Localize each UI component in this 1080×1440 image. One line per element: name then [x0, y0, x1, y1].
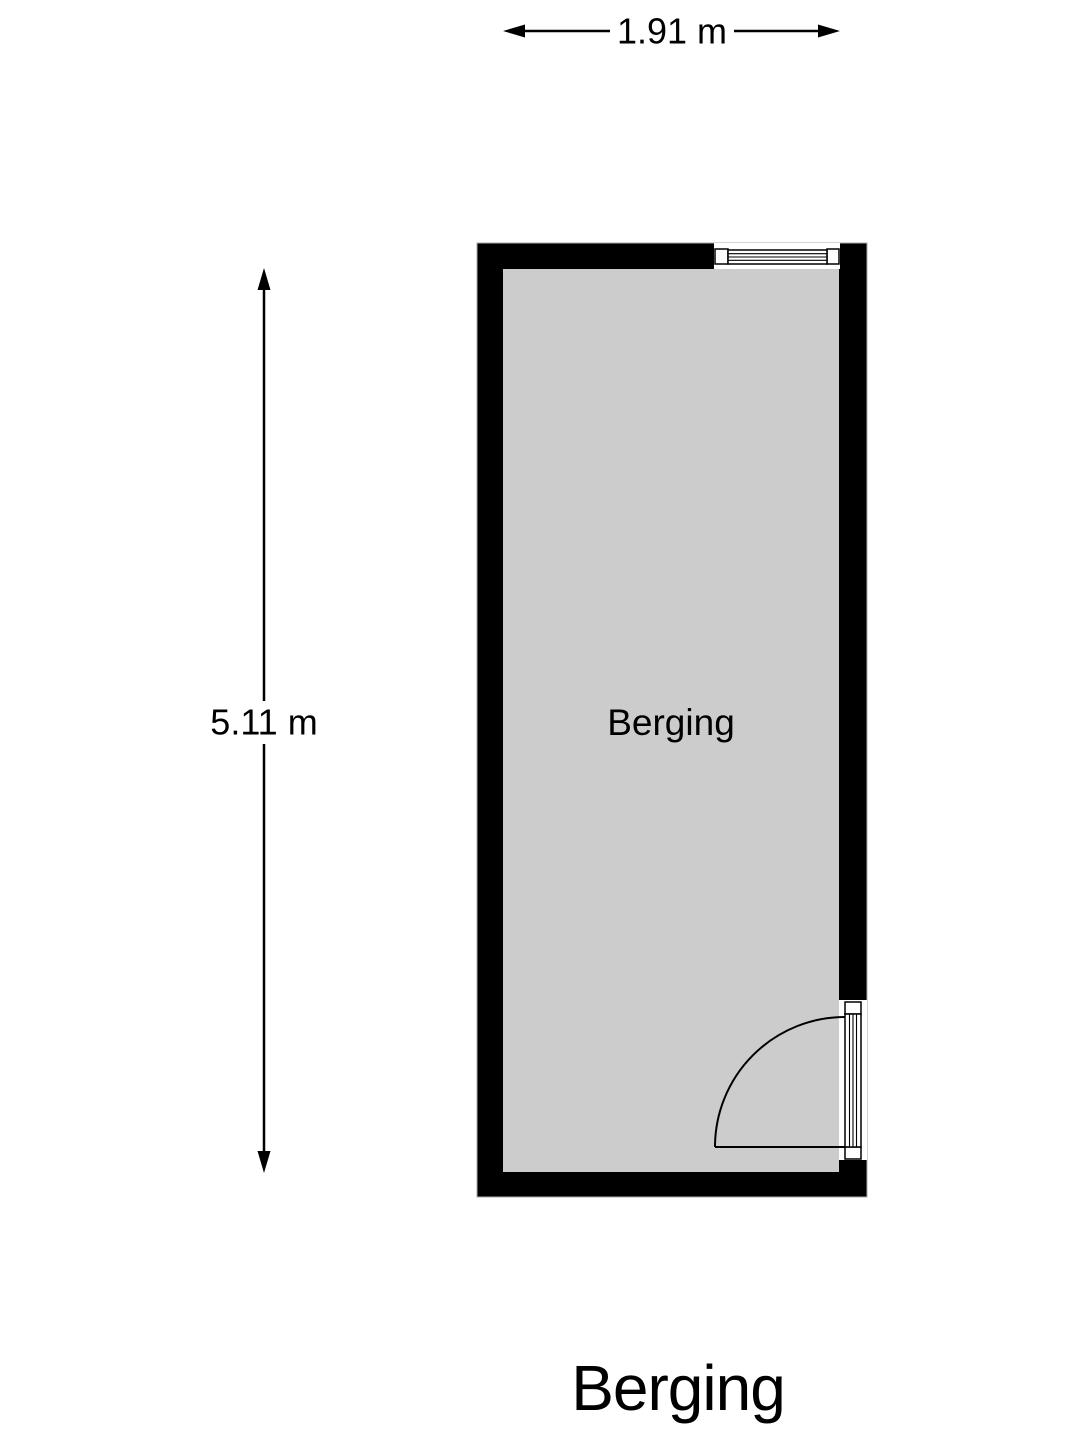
door-jamb-top: [845, 1002, 861, 1014]
arrowhead-right-icon: [818, 25, 840, 38]
arrowhead-up-icon: [258, 268, 271, 290]
plan-title: Berging: [571, 1352, 785, 1424]
height-dimension: 5.11 m: [210, 268, 317, 1173]
door-jamb-bottom: [845, 1147, 861, 1159]
width-dimension-label: 1.91 m: [617, 11, 727, 52]
window: [714, 243, 840, 269]
room-label: Berging: [607, 702, 735, 743]
height-dimension-label: 5.11 m: [210, 702, 317, 743]
floor-plan-page: 1.91 m 5.11 m Berging Berging: [0, 0, 1080, 1440]
window-jamb-left: [715, 249, 728, 264]
width-dimension: 1.91 m: [503, 11, 840, 52]
arrowhead-left-icon: [503, 25, 525, 38]
window-jamb-right: [827, 249, 839, 264]
floor-plan-canvas: 1.91 m 5.11 m Berging Berging: [0, 0, 1080, 1440]
arrowhead-down-icon: [258, 1151, 271, 1173]
